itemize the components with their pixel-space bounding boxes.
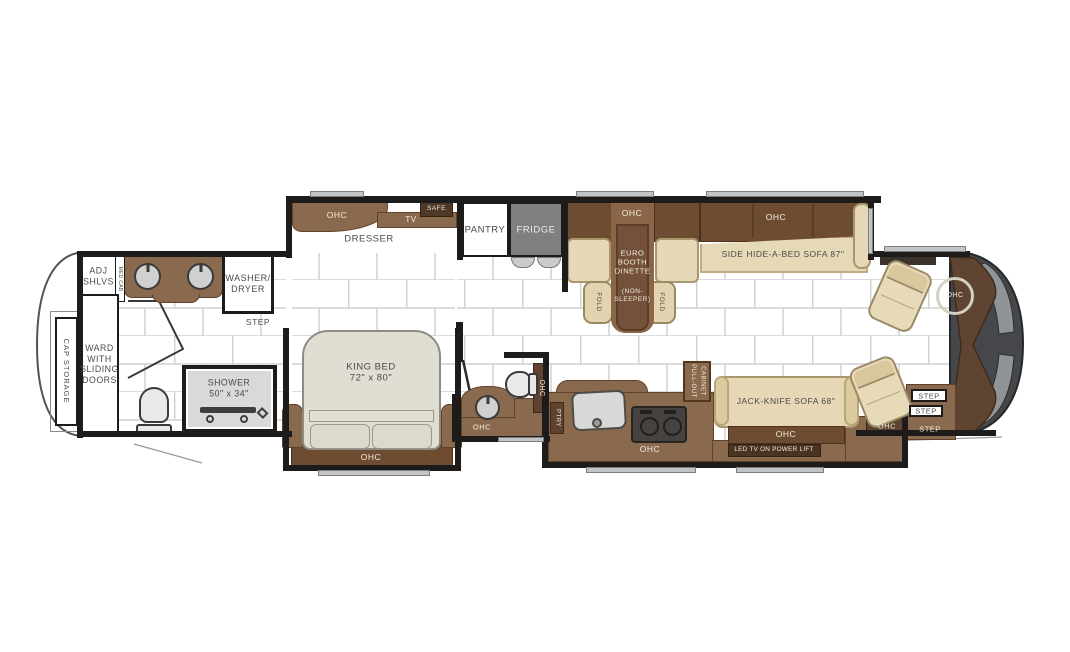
rear-toilet-bowl [139,387,169,423]
window-bar-sofa [706,191,864,197]
window-bar-kitchen-1 [586,467,696,473]
entry-step-1-label: STEP [918,391,940,400]
pantry-label: PANTRY [465,224,506,235]
shower-bench-leg-left [206,415,214,423]
dinette-bench-right-seat [655,238,699,283]
midbath-sink [475,395,500,420]
dinette-bench-left-seat [567,238,611,283]
shower-bench [200,407,256,413]
window-bar-dinette [576,191,654,197]
window-bar-midbath [498,437,544,442]
wall-bottom-rear [77,431,292,437]
sofa-back-seam-2 [812,204,814,238]
fridge-label: FRIDGE [517,224,556,235]
midbath-vanity-ohc-label: OHC [473,423,491,432]
tv-label: TV [405,215,416,225]
wall-top-main [286,196,881,203]
rear-step-label: STEP [246,317,270,327]
dash-ohc-label: OHC [946,292,963,300]
window-bar-dinette-side [868,208,873,254]
shower-bench-leg-right [240,415,248,423]
king-bed-cushion-right [372,424,432,449]
window-bar-dresser [310,191,364,197]
dinette-booth-sublabel: (NON- SLEEPER) [614,288,650,304]
led-tv-label: LED TV ON POWER LIFT [734,446,813,454]
rear-door-swing [134,444,202,463]
dinette-booth-label: EURO BOOTH DINETTE [615,249,651,276]
jack-knife-label: JACK-KNIFE SOFA 68" [737,396,836,406]
rear-sink-left [134,263,161,290]
dinette-ohc-label: OHC [622,208,642,218]
hide-a-bed-label: SIDE HIDE-A-BED SOFA 87" [722,249,845,259]
kitchen-faucet [592,418,602,428]
jack-knife-ohc-label: OHC [776,429,796,439]
shower-box [182,365,277,433]
window-bar-driver [884,246,966,252]
wall-midbath-doorjamb [456,322,463,362]
bed-ohc-label: OHC [361,452,381,462]
rv-floor-plan: CAP STORAGE ADJ SHLVS MED CAB WASHER/ DR… [0,0,1070,652]
shower-label: SHOWER 50" x 34" [208,377,251,398]
dresser-ohc-label: OHC [327,210,347,220]
sofa-ohc-label: OHC [766,212,786,222]
rear-sink-right [187,263,214,290]
midbath-ohc-label: OHC [537,379,545,396]
washer-dryer-label: WASHER/ DRYER [225,273,270,295]
dinette-bench-left-back [566,202,612,242]
cooktop-slot-right [664,410,676,414]
king-bed-blanket-line [309,410,434,422]
entry-step-3-label: STEP [919,425,941,434]
adj-shlvs-label: ADJ SHLVS [83,265,114,286]
dinette-table [616,224,649,331]
dinette-bench-right-back [654,202,700,242]
wall-top-rear [77,251,292,257]
wall-midbath-top [504,352,549,358]
wall-bed-slide-left [283,328,289,471]
dinette-fold-left-label: FOLD [594,292,602,311]
kitchen-ohc-label: OHC [640,444,660,454]
window-bar-kitchen-2 [736,467,824,473]
dinette-fold-right-label: FOLD [657,292,665,311]
window-bar-bed-slide [318,470,430,476]
cooktop-burner-left [640,417,659,436]
wall-dresser-slide-left [286,196,292,258]
passenger-seat-seam [867,391,901,405]
cap-storage-label: CAP STORAGE [62,339,71,404]
entry-ohc-label: OHC [878,422,896,431]
wall-dinette-slide-left [562,196,568,292]
entry-step-2-label: STEP [915,407,937,416]
wall-midbath-left [452,394,458,440]
dresser-label: DRESSER [344,233,393,244]
king-bed-label: KING BED 72" x 80" [346,362,395,385]
wall-kitchen-slide-right [902,414,908,468]
rear-vanity-dip [152,294,200,303]
wardrobe-label: WARD WITH SLIDING DOORS [80,343,119,385]
jack-knife-arm-left [714,376,729,426]
wall-dresser-slide-right [457,196,463,260]
safe-label: SAFE [427,205,446,213]
pull-out-cabinet-label: PULL-OUT CABINET [687,364,706,398]
cooktop-burner-right [663,417,682,436]
sofa-back-seam-1 [752,204,754,238]
cooktop-slot-left [640,410,652,414]
med-cab-label: MED CAB [117,267,123,292]
king-bed-cushion-left [310,424,370,449]
ptry-label: PTRY [553,409,560,427]
driver-seat-seam [881,294,914,310]
